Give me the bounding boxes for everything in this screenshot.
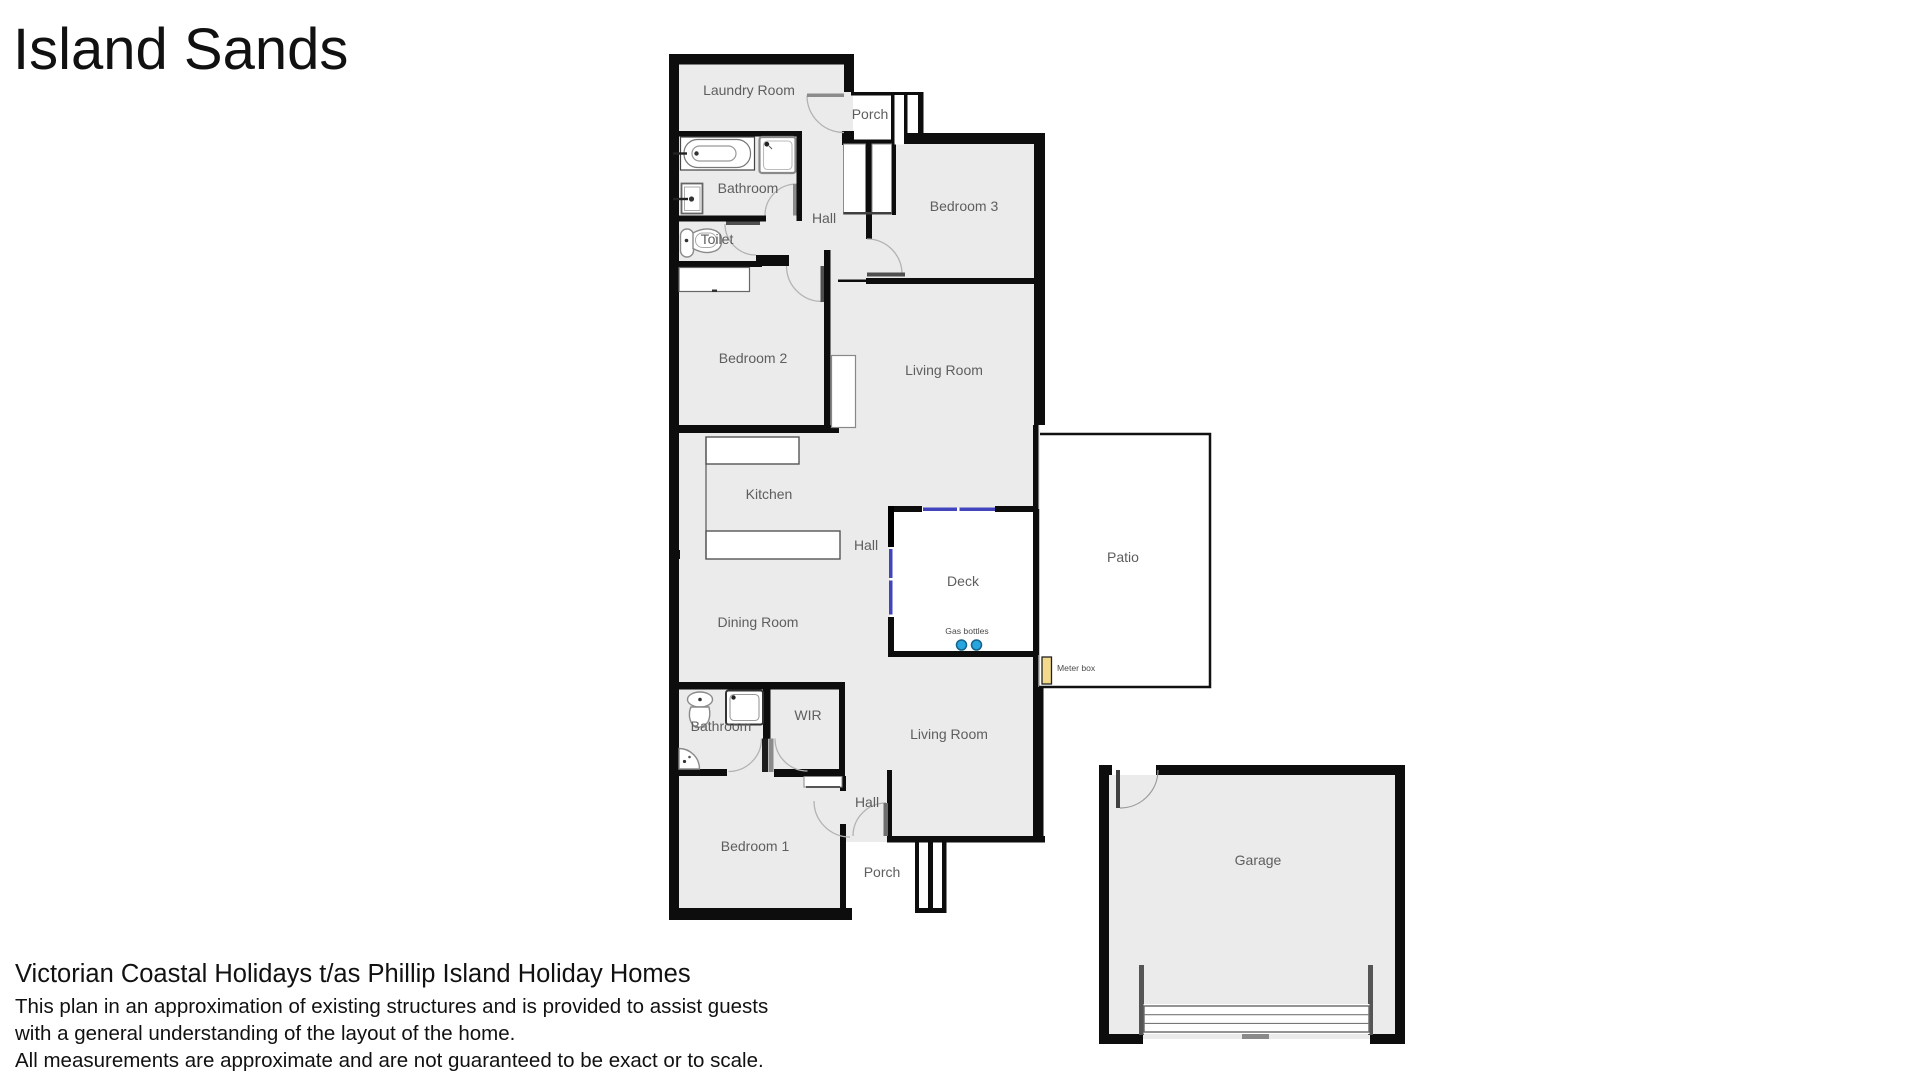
svg-text:Bedroom 3: Bedroom 3 [930, 198, 999, 214]
svg-text:Living Room: Living Room [910, 726, 988, 742]
svg-text:Garage: Garage [1235, 852, 1282, 868]
svg-text:Hall: Hall [855, 794, 879, 810]
svg-text:Meter box: Meter box [1057, 663, 1096, 673]
svg-text:Bedroom 2: Bedroom 2 [719, 350, 788, 366]
svg-text:WIR: WIR [794, 707, 821, 723]
svg-text:Deck: Deck [947, 573, 980, 589]
svg-text:Hall: Hall [812, 210, 836, 226]
svg-text:Patio: Patio [1107, 549, 1139, 565]
svg-text:Bathroom: Bathroom [718, 180, 779, 196]
svg-text:Gas bottles: Gas bottles [945, 626, 988, 636]
svg-text:Hall: Hall [854, 537, 878, 553]
svg-text:Victorian Coastal Holidays t/a: Victorian Coastal Holidays t/as Phillip … [15, 960, 691, 988]
svg-text:Dining Room: Dining Room [718, 614, 799, 630]
svg-text:Bedroom 1: Bedroom 1 [721, 838, 790, 854]
svg-text:Porch: Porch [852, 106, 889, 122]
svg-text:Toilet: Toilet [701, 231, 734, 247]
svg-text:Porch: Porch [864, 864, 901, 880]
svg-text:Living Room: Living Room [905, 362, 983, 378]
svg-text:with a general understanding o: with a general understanding of the layo… [14, 1022, 515, 1045]
svg-text:Laundry Room: Laundry Room [703, 82, 795, 98]
svg-text:All measurements are approxima: All measurements are approximate and are… [15, 1049, 764, 1072]
svg-text:Island Sands: Island Sands [13, 17, 348, 82]
svg-text:This plan in an approximation: This plan in an approximation of existin… [15, 995, 768, 1018]
svg-text:Bathroom: Bathroom [691, 718, 752, 734]
svg-text:Kitchen: Kitchen [746, 486, 793, 502]
